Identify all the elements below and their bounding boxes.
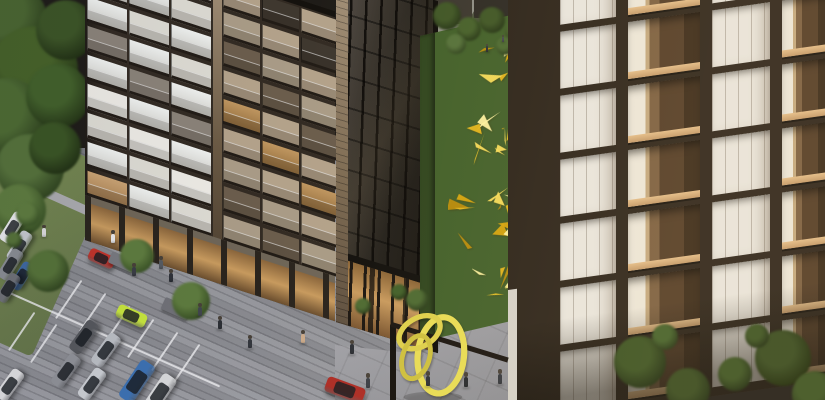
tree [745, 324, 769, 348]
pedestrian-shadow [485, 51, 490, 53]
white-panel-cell [560, 88, 616, 153]
tree [652, 324, 678, 350]
pedestrian [132, 263, 137, 276]
architectural-rendering-canvas [0, 0, 825, 400]
pedestrian-body [248, 339, 252, 349]
pedestrian-body [350, 344, 355, 354]
pedestrian-head [248, 335, 252, 339]
pedestrian [486, 44, 489, 52]
pedestrian [497, 369, 503, 385]
pedestrian [42, 225, 47, 237]
pedestrian [349, 340, 355, 355]
tree [120, 239, 154, 273]
pedestrian [300, 330, 306, 344]
white-panel-cell [712, 130, 770, 195]
pedestrian-shadow [41, 236, 48, 238]
balcony-cell [782, 186, 825, 249]
tree [479, 7, 505, 33]
balcony-shelf [782, 44, 825, 57]
tree [355, 298, 371, 314]
pedestrian-body [366, 378, 371, 389]
balcony-cell [782, 0, 825, 57]
pedestrian [365, 373, 371, 389]
pedestrian-shadow [110, 242, 117, 244]
balcony-cell [628, 12, 700, 79]
white-panel-cell [560, 152, 616, 217]
pedestrian [425, 371, 431, 387]
tree [446, 34, 466, 54]
pedestrian-head [132, 263, 136, 267]
pedestrian-shadow [364, 388, 372, 390]
pedestrian-shadow [131, 275, 138, 277]
pedestrian-body [464, 377, 469, 388]
pedestrian-head [159, 256, 163, 260]
pedestrian-head [111, 230, 115, 234]
pedestrian [217, 316, 222, 330]
tree [718, 357, 752, 391]
pedestrian-head [498, 369, 502, 373]
white-panel-cell [560, 216, 616, 281]
tree [391, 284, 407, 300]
tree [26, 64, 90, 128]
pedestrian-body [426, 376, 431, 387]
pedestrian-head [464, 372, 468, 376]
pedestrian [111, 230, 116, 243]
white-panel-cell [712, 194, 770, 259]
pedestrian [502, 35, 505, 42]
balcony-cell [628, 140, 700, 207]
balcony-cell [628, 204, 700, 271]
balcony-shelf [782, 236, 825, 249]
pedestrian-shadow [246, 348, 254, 350]
pedestrian-body [301, 334, 305, 344]
pedestrian-shadow [496, 384, 504, 386]
pedestrian-shadow [299, 343, 307, 345]
balcony-cell [628, 76, 700, 143]
pedestrian-head [426, 371, 430, 375]
pedestrian-shadow [462, 387, 470, 389]
pedestrian-shadow [424, 386, 432, 388]
pedestrian [159, 256, 164, 269]
balcony-cell [782, 58, 825, 121]
yellow-ribbon-sculpture [392, 296, 472, 400]
pedestrian-head [301, 330, 305, 334]
pedestrian-shadow [216, 329, 223, 331]
pedestrian-shadow [196, 316, 203, 318]
white-panel-cell [560, 0, 616, 25]
pedestrian-shadow [348, 354, 356, 356]
pedestrian-shadow [158, 268, 165, 270]
balcony-cell [782, 122, 825, 185]
car-cabin [92, 250, 109, 265]
balcony-shelf [782, 172, 825, 185]
tree [16, 202, 40, 226]
white-panel-cell [712, 2, 770, 67]
tree [27, 250, 69, 292]
pedestrian-head [169, 269, 173, 273]
pedestrian-shadow [168, 281, 175, 283]
pedestrian-head [366, 373, 370, 377]
pedestrian [197, 303, 202, 317]
pedestrian [247, 335, 253, 349]
tree [6, 232, 22, 248]
tree [406, 289, 428, 311]
white-panel-cell [560, 24, 616, 89]
stone-pier [336, 0, 348, 326]
pedestrian-body [498, 374, 503, 385]
pedestrian [169, 269, 174, 282]
white-corner-pier [508, 289, 517, 400]
pedestrian [463, 372, 469, 388]
white-panel-cell [712, 66, 770, 131]
tree [172, 282, 210, 320]
tree [29, 122, 81, 174]
balcony-shelf [782, 108, 825, 121]
